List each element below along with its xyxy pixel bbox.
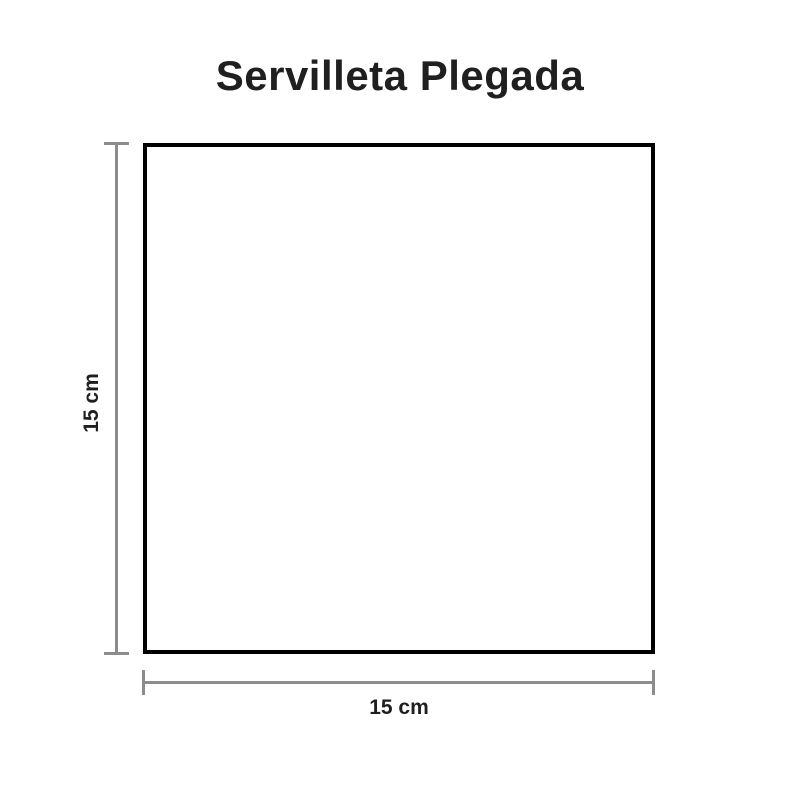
height-dimension-cap-bottom bbox=[104, 652, 129, 655]
width-dimension-label: 15 cm bbox=[339, 696, 459, 720]
width-dimension-line bbox=[142, 670, 655, 695]
diagram-canvas: Servilleta Plegada 15 cm 15 cm bbox=[0, 0, 800, 800]
height-dimension-label: 15 cm bbox=[80, 343, 106, 463]
diagram-title: Servilleta Plegada bbox=[0, 52, 800, 100]
height-dimension-line bbox=[104, 142, 129, 655]
napkin-square-outline bbox=[143, 143, 655, 654]
width-dimension-line-shaft bbox=[142, 681, 655, 684]
width-dimension-cap-right bbox=[652, 670, 655, 695]
height-dimension-line-shaft bbox=[115, 142, 118, 655]
